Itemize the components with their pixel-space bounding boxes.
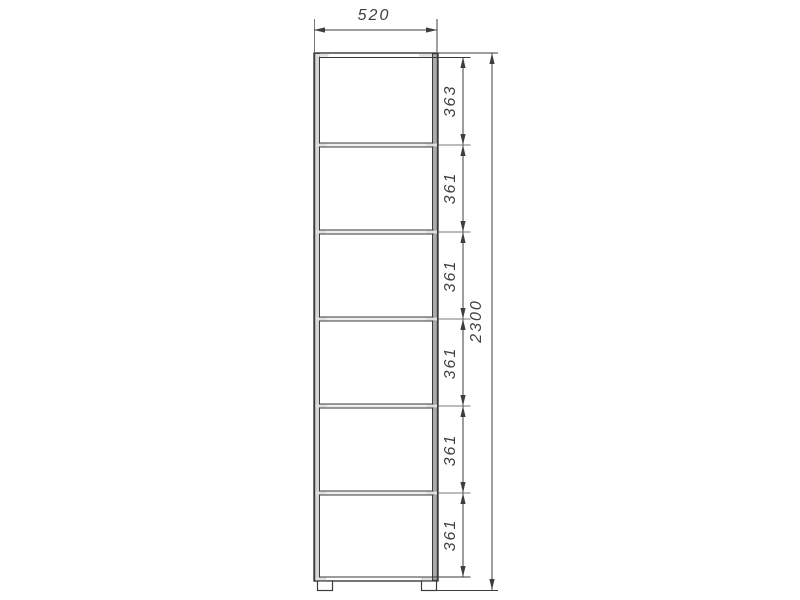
dim-label-segment-1: 363 (443, 85, 459, 118)
furniture-dimension-drawing: 520 363 361 361 361 361 361 2300 (0, 0, 800, 600)
right-foot (422, 581, 437, 591)
shelf-5 (320, 491, 434, 495)
dim-label-segment-5: 361 (443, 434, 459, 467)
dim-label-segment-3: 361 (443, 260, 459, 293)
dim-label-segment-6: 361 (443, 519, 459, 552)
dim-label-segment-4: 361 (443, 347, 459, 380)
segment-arrowheads (460, 57, 465, 577)
shelf-1 (320, 143, 434, 147)
drawing-geometry (0, 0, 800, 600)
dimension-segments (439, 57, 471, 577)
arrowhead-left (314, 27, 325, 32)
dim-label-width: 520 (358, 8, 391, 24)
dim-label-segment-2: 361 (443, 172, 459, 205)
arrowhead-bottom (489, 579, 494, 590)
shelf-3 (320, 317, 434, 321)
left-foot (318, 581, 333, 591)
left-side-panel (315, 54, 320, 581)
dim-label-total-height: 2300 (469, 299, 485, 343)
arrowhead-right (426, 27, 437, 32)
cabinet (314, 53, 470, 591)
shelf-4 (320, 404, 434, 408)
dimension-total-height (430, 53, 498, 591)
arrowhead-top (489, 53, 494, 64)
shelf-2 (320, 230, 434, 234)
